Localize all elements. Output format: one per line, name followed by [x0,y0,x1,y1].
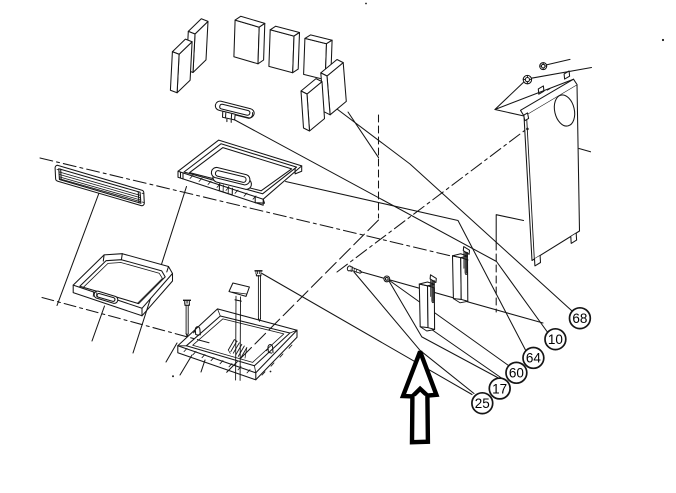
svg-text:68: 68 [572,311,587,326]
svg-text:25: 25 [475,396,490,411]
svg-text:64: 64 [526,351,542,366]
svg-text:10: 10 [548,332,563,347]
svg-text:60: 60 [509,366,524,381]
svg-text:17: 17 [492,381,507,396]
